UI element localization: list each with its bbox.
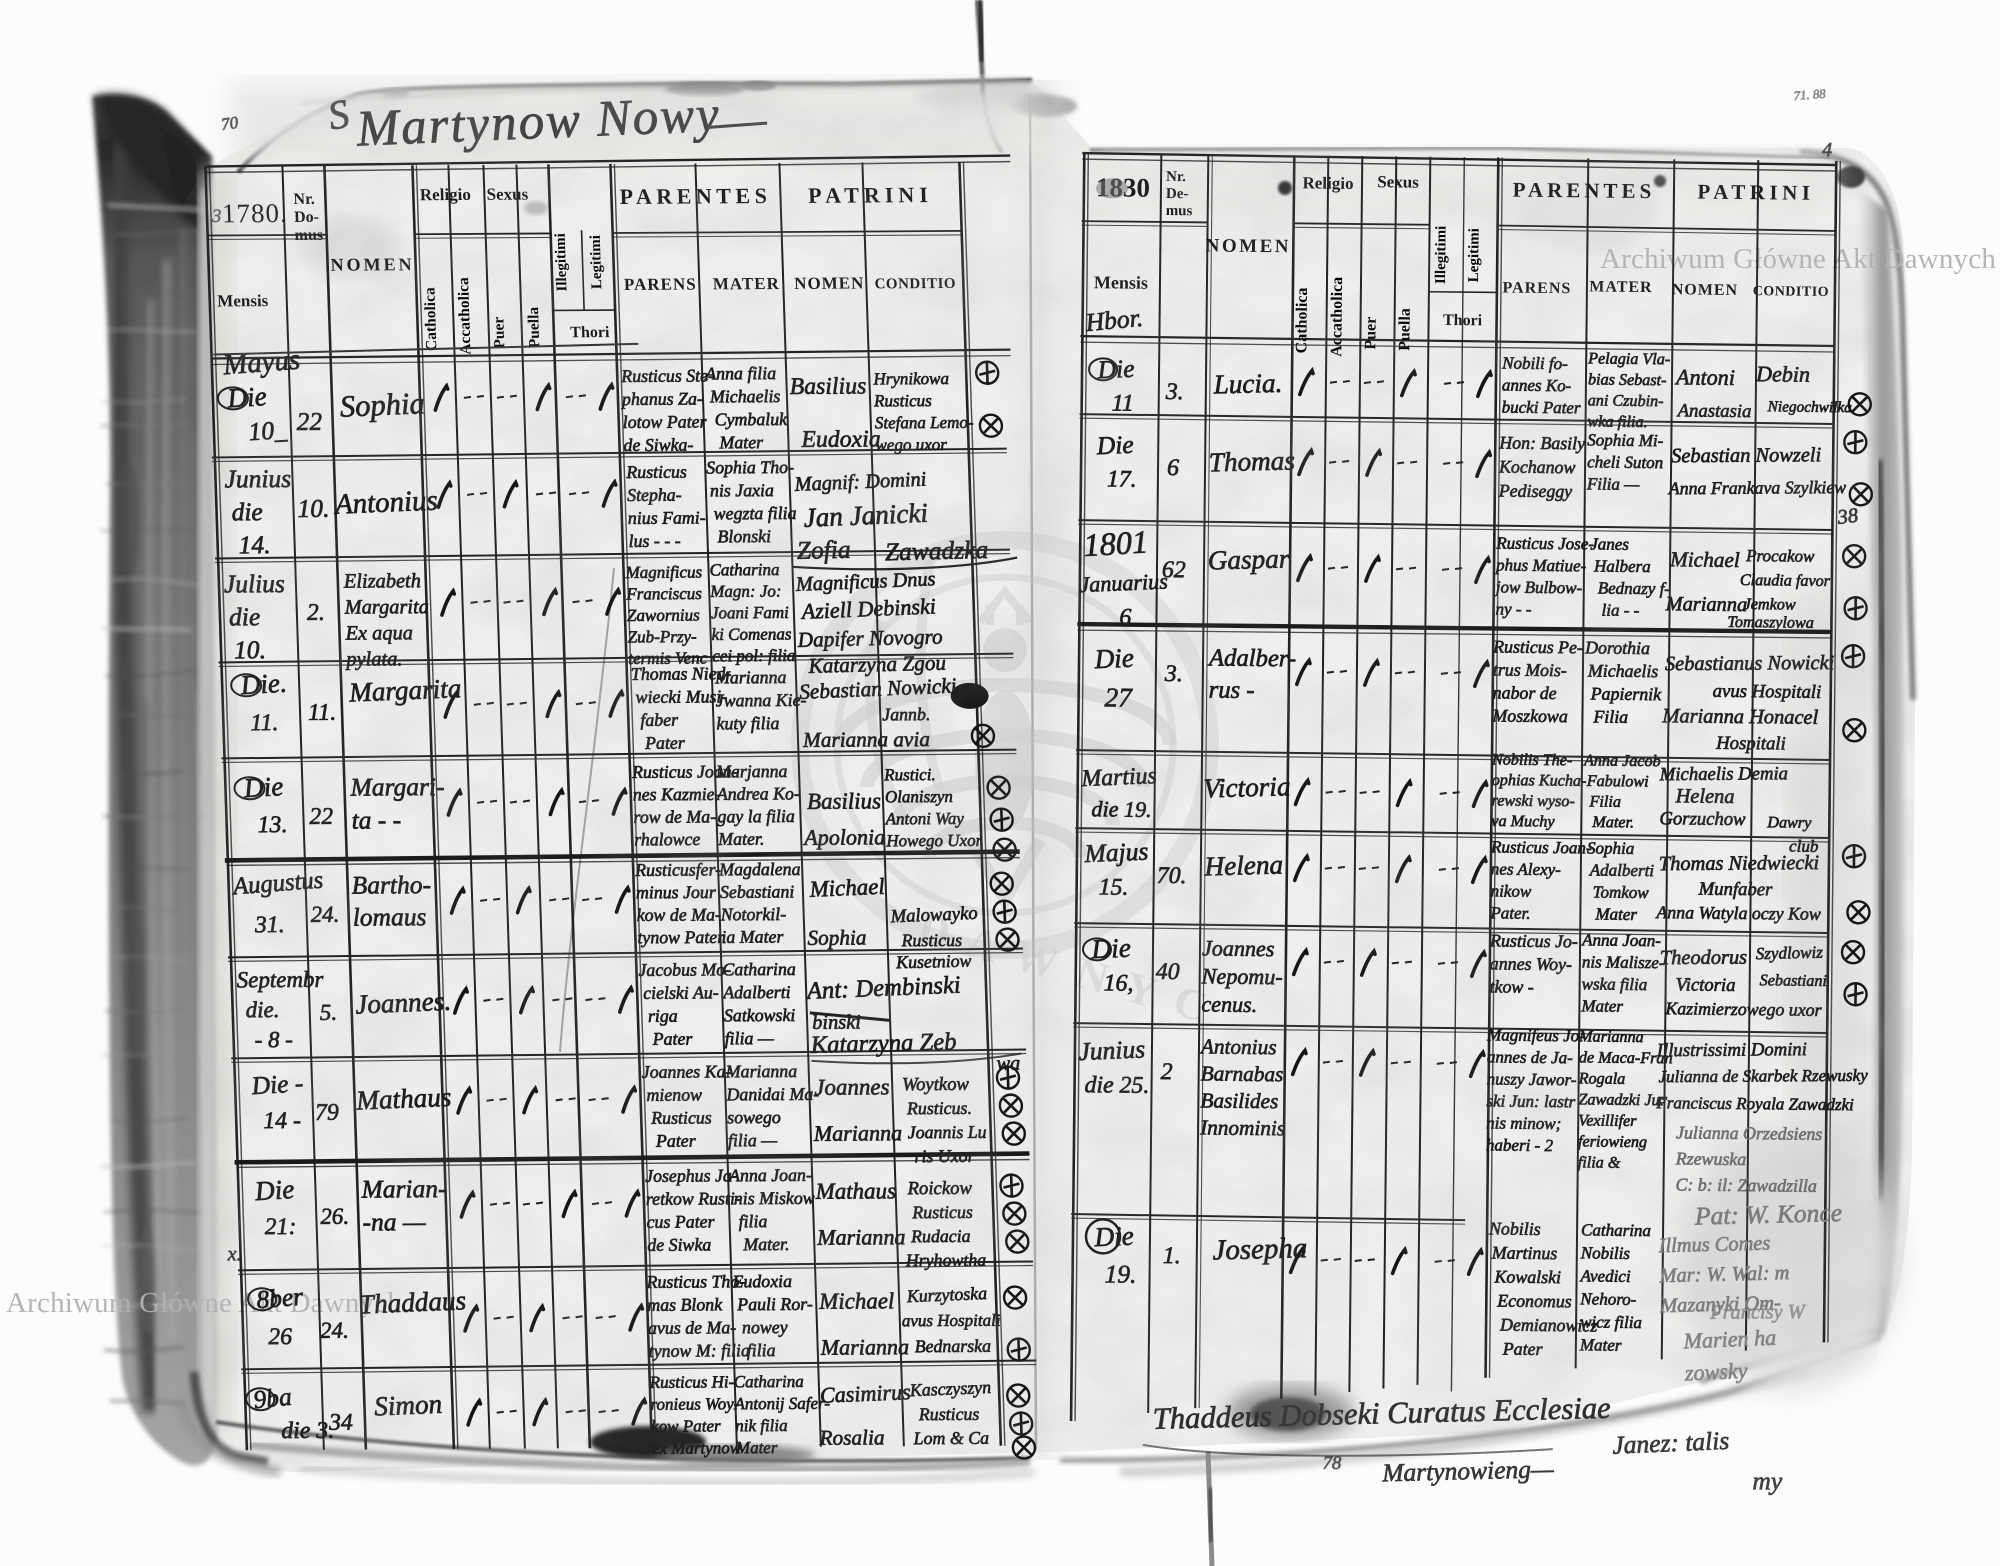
svg-text:71. 88: 71. 88 bbox=[1793, 87, 1826, 103]
svg-text:Martynowieng—: Martynowieng— bbox=[1381, 1454, 1554, 1487]
svg-text:70: 70 bbox=[220, 113, 240, 134]
svg-text:Janez: talis: Janez: talis bbox=[1612, 1426, 1730, 1460]
svg-text:my: my bbox=[1752, 1466, 1783, 1495]
